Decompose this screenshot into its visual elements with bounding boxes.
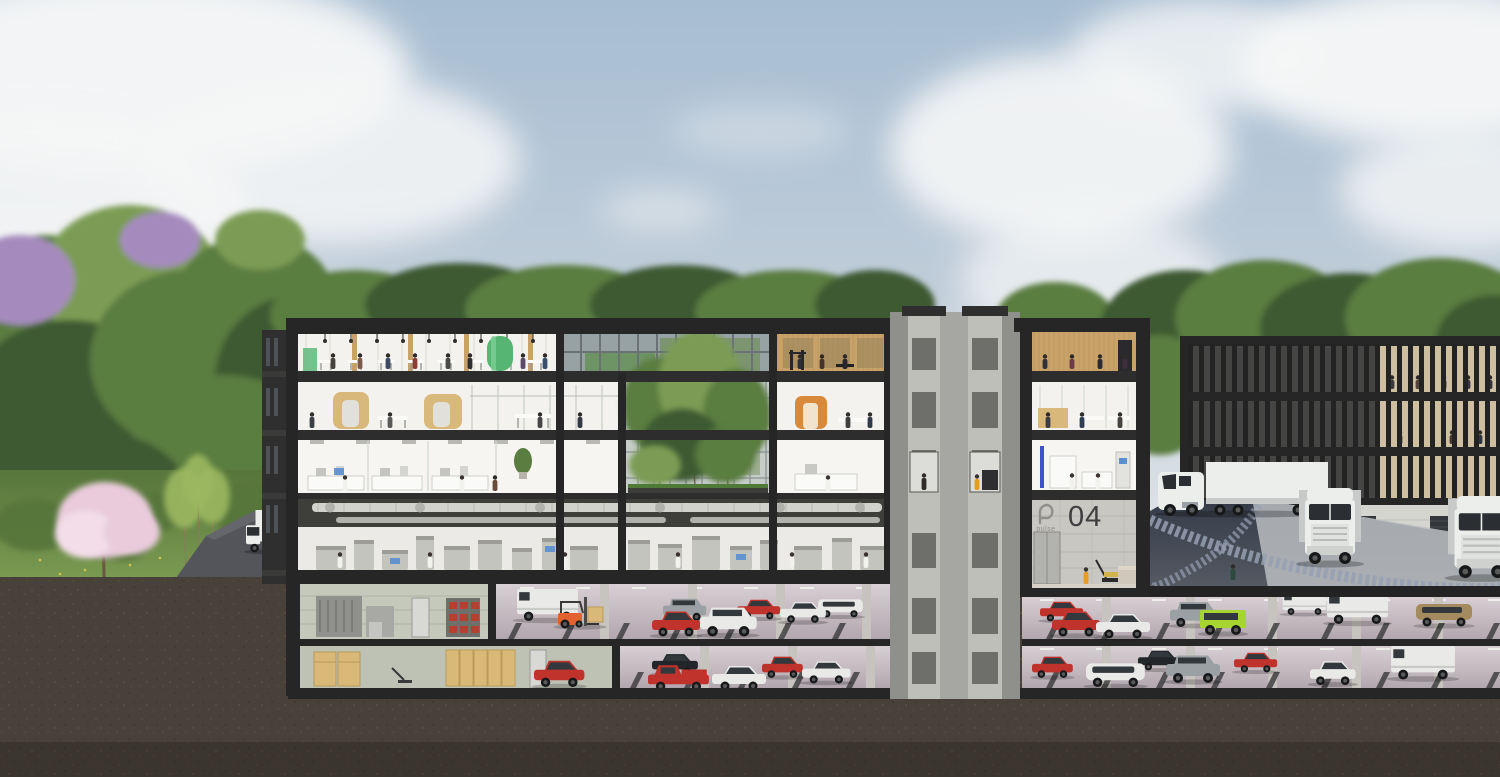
person: [428, 552, 433, 568]
facade-fin: [1463, 344, 1468, 394]
facade-fin: [1474, 399, 1479, 449]
person: [843, 354, 848, 369]
person: [1046, 412, 1051, 428]
architectural-section-rendering: pulse 04: [0, 0, 1500, 777]
red-bin: [471, 626, 479, 633]
ceiling-vent: [586, 440, 600, 444]
car-jimny: [1198, 610, 1249, 637]
facade-fin: [1419, 399, 1424, 449]
desk: [378, 416, 408, 420]
person: [538, 412, 543, 428]
pillar: [862, 584, 871, 639]
facade-fin: [1474, 454, 1479, 500]
structural-column: [556, 332, 564, 570]
scene: pulse 04: [0, 0, 1500, 777]
process-machine: [542, 538, 558, 570]
pendant-light: [401, 339, 405, 343]
crate: [488, 650, 501, 686]
facade-fin: [1408, 399, 1413, 449]
sideboard: [1038, 408, 1068, 428]
person: [1043, 354, 1048, 369]
person: [578, 412, 583, 428]
facade-fin: [1232, 399, 1237, 449]
courtyard-tree: [629, 445, 681, 485]
facade-fin: [1386, 454, 1391, 500]
facade-fin: [1309, 344, 1314, 394]
facade-fin: [1452, 344, 1457, 394]
cloud: [600, 190, 720, 230]
facade-fin: [1364, 344, 1369, 394]
facade-fin: [1254, 399, 1259, 449]
pendant-light: [479, 339, 483, 343]
shaft-opening: [912, 533, 936, 568]
red-bin: [449, 614, 457, 621]
red-bin: [449, 626, 457, 633]
facade-fin: [1430, 344, 1435, 394]
crate: [474, 650, 487, 686]
person: [543, 353, 548, 369]
car-minivan: [1083, 663, 1148, 689]
facade-fin: [1188, 399, 1193, 449]
facade-fin: [1386, 399, 1391, 449]
ground-slab: [288, 570, 905, 584]
facade-fin: [1408, 344, 1413, 394]
facade-fin: [1243, 344, 1248, 394]
facade-fin: [1210, 399, 1215, 449]
person: [521, 353, 526, 369]
person: [975, 474, 980, 490]
facade-fin: [1386, 344, 1391, 394]
person: [1118, 412, 1123, 428]
person: [388, 412, 393, 428]
facade-fin: [1276, 399, 1281, 449]
facade-fin: [1331, 399, 1336, 449]
electrical-cabinet: [316, 596, 362, 637]
person: [413, 353, 418, 369]
process-machine: [628, 540, 650, 570]
red-bin: [460, 602, 468, 609]
person: [468, 353, 473, 369]
facade-fin: [1188, 344, 1193, 394]
duct-flange: [535, 503, 545, 513]
pulse-logo-wordmark: pulse: [1036, 526, 1055, 533]
shaft-opening: [972, 533, 998, 568]
facade-fin: [1419, 454, 1424, 500]
facade-fin: [1430, 399, 1435, 449]
process-machine: [478, 540, 502, 570]
person: [1096, 473, 1101, 489]
duct-flange: [855, 503, 865, 513]
pillar: [866, 646, 875, 688]
crate: [314, 652, 336, 686]
door: [412, 598, 429, 637]
lab-bench: [372, 476, 422, 490]
person: [446, 353, 451, 369]
person: [331, 353, 336, 369]
ceiling-vent: [402, 440, 416, 444]
roof-slab: [288, 318, 905, 334]
facade-fin: [1441, 454, 1446, 500]
facade-fin: [1441, 399, 1446, 449]
facade-fin: [1342, 399, 1347, 449]
person: [1098, 354, 1103, 369]
person: [1123, 354, 1128, 369]
person: [338, 552, 343, 568]
facade-fin: [1221, 399, 1226, 449]
pendant-light: [323, 339, 327, 343]
red-bin: [460, 614, 468, 621]
facade-fin: [1298, 399, 1303, 449]
facade-fin: [1243, 399, 1248, 449]
person: [790, 552, 795, 568]
lab-bench: [308, 476, 364, 490]
person: [1070, 473, 1075, 489]
facade-fin: [1463, 454, 1468, 500]
shaft-opening: [972, 392, 998, 428]
person: [460, 475, 465, 491]
tree: [215, 210, 305, 270]
shaft-opening: [912, 652, 936, 684]
indoor-plant: [514, 448, 532, 474]
facade-fin: [1419, 344, 1424, 394]
cloud: [140, 75, 520, 245]
red-bin: [471, 602, 479, 609]
red-bin: [460, 626, 468, 633]
desk: [515, 414, 551, 418]
facade-fin: [1232, 344, 1237, 394]
person: [826, 475, 831, 491]
facade-fin: [1397, 344, 1402, 394]
facade-fin: [1496, 344, 1500, 394]
table: [528, 360, 544, 363]
facade-fin: [1375, 344, 1380, 394]
building-number: 04: [1068, 501, 1102, 533]
pendant-light: [349, 339, 353, 343]
process-machine: [832, 538, 852, 570]
person: [1070, 354, 1075, 369]
person: [358, 353, 363, 369]
shaft-opening: [912, 338, 936, 370]
crate: [338, 652, 360, 686]
structural-column: [769, 332, 777, 570]
facade-fin: [1265, 399, 1270, 449]
blue-led-strip: [1040, 446, 1044, 488]
cargo-cart: [982, 470, 998, 490]
facade-fin: [1485, 399, 1490, 449]
facade-fin: [1276, 344, 1281, 394]
duct-flange: [415, 503, 425, 513]
pallet: [1104, 572, 1118, 577]
facade-fin: [1463, 399, 1468, 449]
facade-fin: [1474, 344, 1479, 394]
person: [676, 552, 681, 568]
tree: [120, 212, 200, 268]
duct-flange: [325, 503, 335, 513]
facade-fin: [1375, 454, 1380, 500]
lobby-04: pulse 04: [1032, 500, 1136, 588]
facade-fin: [1309, 399, 1314, 449]
person: [386, 353, 391, 369]
pendant-light: [453, 339, 457, 343]
person: [798, 354, 803, 369]
gym-window: [857, 338, 883, 368]
facade-fin: [1287, 344, 1292, 394]
facade-fin: [1298, 344, 1303, 394]
person: [310, 412, 315, 428]
person: [820, 354, 825, 369]
green-cylinder-feature: [487, 336, 513, 371]
shaft-opening: [972, 652, 998, 684]
shaft-opening: [972, 598, 998, 634]
pillar: [1352, 646, 1361, 688]
lab-screen: [334, 468, 344, 475]
pendant-light: [375, 339, 379, 343]
person: [868, 412, 873, 428]
shaft-opening: [972, 338, 998, 370]
facade-fin: [1496, 399, 1500, 449]
facade-fin: [1452, 454, 1457, 500]
elevator-shaft: [908, 312, 940, 699]
cloud: [670, 104, 850, 156]
shaft-opening: [912, 392, 936, 428]
facade-fin: [1210, 344, 1215, 394]
ceiling-vent: [310, 440, 324, 444]
core-cap: [902, 306, 946, 316]
air-duct: [312, 503, 882, 512]
lab-fridge: [1116, 452, 1130, 488]
facade-fin: [1496, 454, 1500, 500]
person: [493, 475, 498, 491]
pendant-light: [531, 339, 535, 343]
facade-fin: [1353, 344, 1358, 394]
facade-fin: [1265, 344, 1270, 394]
process-machine: [354, 540, 374, 570]
crate: [446, 650, 459, 686]
timber-column: [352, 332, 357, 371]
person: [1080, 412, 1085, 428]
facade-fin: [1353, 399, 1358, 449]
elevator-shaft: [968, 312, 1002, 699]
facade-fin: [1199, 344, 1204, 394]
facade-fin: [1441, 344, 1446, 394]
facade-fin: [1221, 344, 1226, 394]
facade-fin: [1364, 399, 1369, 449]
underground-parking-right: [1022, 592, 1500, 689]
red-bin: [449, 602, 457, 609]
facade-fin: [1199, 399, 1204, 449]
person: [1231, 564, 1236, 580]
facade-fin: [1375, 399, 1380, 449]
facade-fin: [1320, 344, 1325, 394]
ceiling-vent: [448, 440, 462, 444]
duct-flange: [655, 503, 665, 513]
elevator-core: [890, 306, 1020, 699]
facade-fin: [1331, 344, 1336, 394]
structural-column: [618, 373, 626, 570]
crate: [502, 650, 515, 686]
process-machine: [692, 536, 720, 570]
facade-fin: [1452, 399, 1457, 449]
facade-fin: [1485, 454, 1490, 500]
core-cap: [962, 306, 1008, 316]
person: [846, 412, 851, 428]
facade-fin: [1320, 399, 1325, 449]
red-bin: [471, 614, 479, 621]
person: [922, 473, 927, 490]
shaft-opening: [912, 598, 936, 634]
person: [343, 475, 348, 491]
facade-fin: [1397, 454, 1402, 500]
facade-fin: [1485, 344, 1490, 394]
person: [1084, 567, 1089, 584]
car-minivan: [1413, 604, 1475, 629]
facade-fin: [1287, 399, 1292, 449]
ceiling-vent: [540, 440, 554, 444]
facade-fin: [1364, 454, 1369, 500]
sapling-tree: [194, 468, 230, 524]
crate: [460, 650, 473, 686]
facade-fin: [1342, 344, 1347, 394]
kitchen-equipment: [303, 348, 317, 371]
pendant-light: [427, 339, 431, 343]
facade-fin: [1254, 344, 1259, 394]
facade-fin: [1430, 454, 1435, 500]
facade-fin: [1408, 454, 1413, 500]
person: [864, 552, 869, 568]
facade-fin: [1397, 399, 1402, 449]
